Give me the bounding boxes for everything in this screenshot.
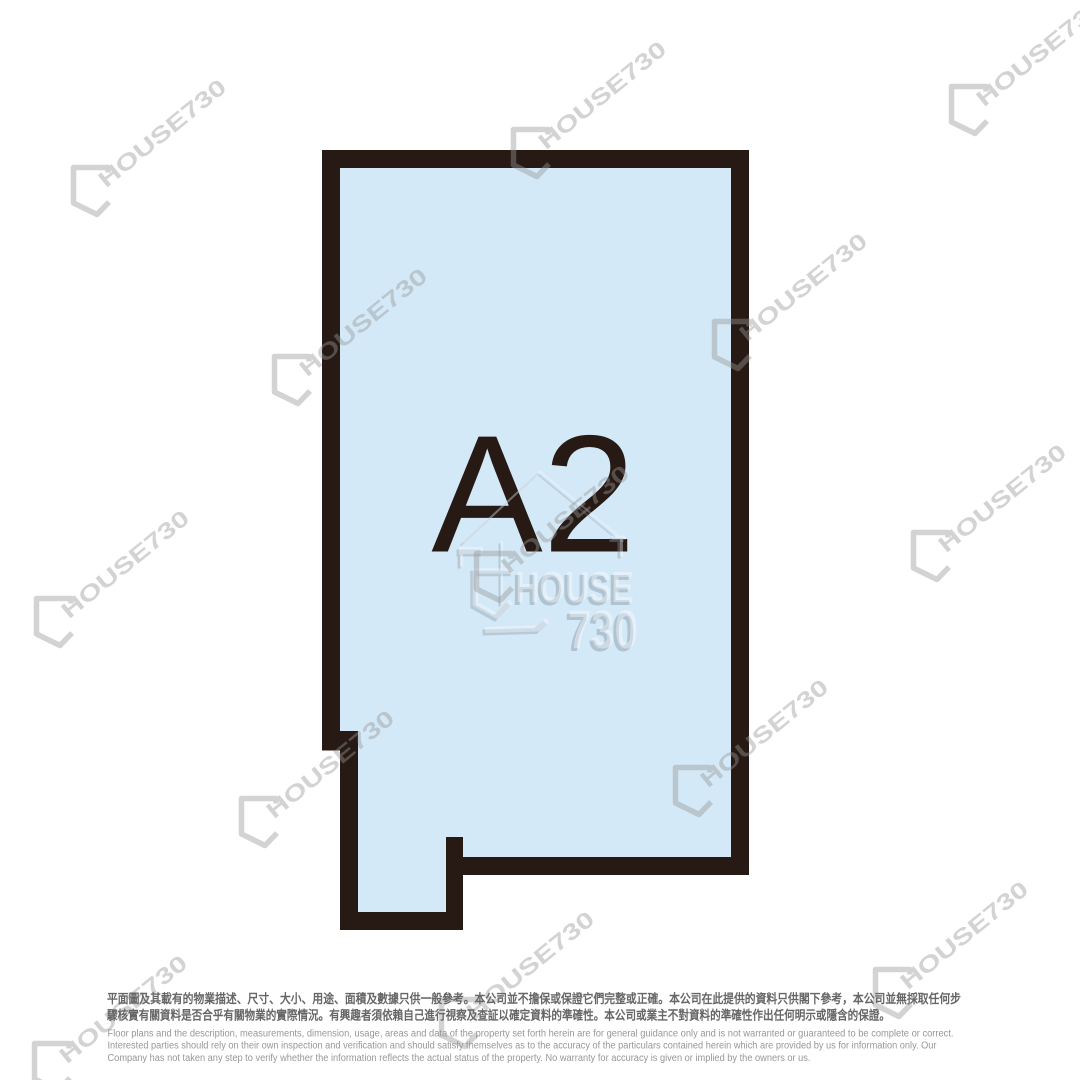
svg-text:730: 730 (568, 600, 638, 660)
svg-text:Company has not taken any step: Company has not taken any step to verify… (108, 1053, 811, 1064)
svg-text:驟核實有關資料是否合乎有關物業的實際情況。有興趣者須依賴自己: 驟核實有關資料是否合乎有關物業的實際情況。有興趣者須依賴自己進行視察及查証以確定… (107, 1007, 890, 1022)
svg-text:Interested parties should rely: Interested parties should rely on their … (108, 1041, 938, 1052)
svg-text:平面圖及其載有的物業描述、尺寸、大小、用途、面積及數據只供一: 平面圖及其載有的物業描述、尺寸、大小、用途、面積及數據只供一般參考。本公司並不擔… (107, 991, 961, 1006)
svg-text:Floor plans and the descriptio: Floor plans and the description, measure… (108, 1028, 954, 1039)
